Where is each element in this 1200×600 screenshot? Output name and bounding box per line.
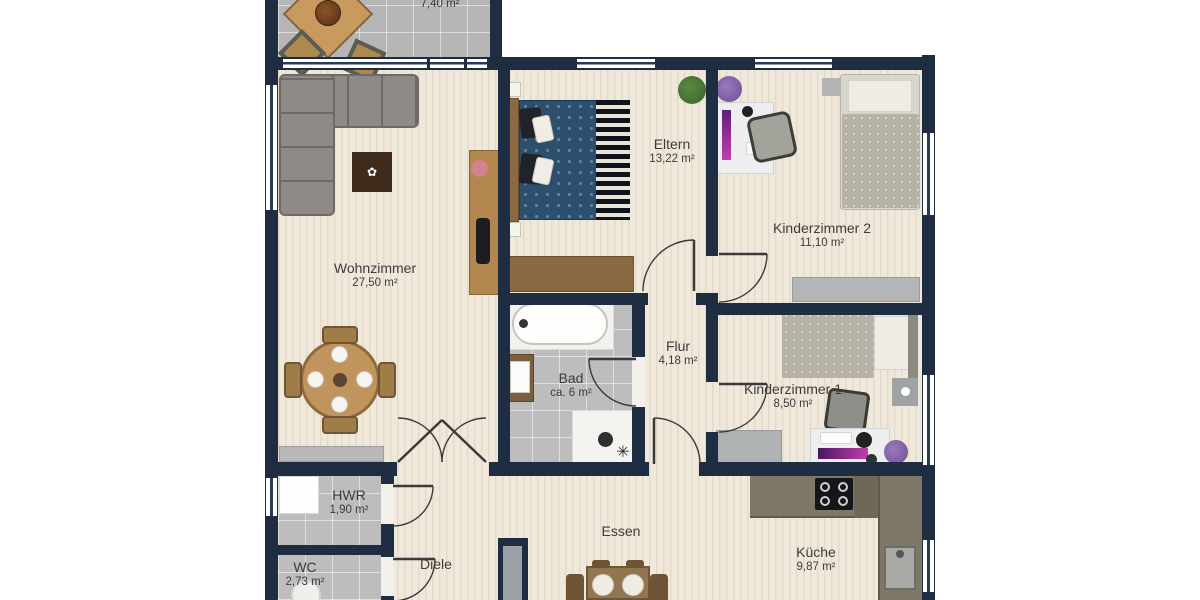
tv xyxy=(476,218,490,264)
dining-chair-north xyxy=(322,326,358,344)
room-name: Wohnzimmer xyxy=(334,260,416,277)
room-area: 1,90 m² xyxy=(330,504,369,518)
essen-chair-top xyxy=(592,560,610,568)
wall-bath-right-upper xyxy=(632,305,645,357)
dining-chair-east xyxy=(378,362,396,398)
window-hwr-left xyxy=(266,478,277,516)
room-area: 9,87 m² xyxy=(796,561,836,575)
room-name: Eltern xyxy=(649,136,694,153)
room-area: 13,22 m² xyxy=(649,153,694,167)
bathtub-faucet xyxy=(519,319,528,328)
k2-monitor xyxy=(722,110,731,160)
dining-chair-west xyxy=(284,362,302,398)
window-parents xyxy=(577,59,655,68)
room-label-bad: Bad ca. 6 m² xyxy=(550,370,592,400)
plate xyxy=(622,574,644,596)
k1-notepad xyxy=(820,432,852,444)
k1-nightstand-knob xyxy=(901,387,910,396)
wall-main-left xyxy=(265,462,397,476)
room-label-balkon: 7,40 m² xyxy=(421,0,460,12)
burner xyxy=(838,482,848,492)
room-area: 7,40 m² xyxy=(421,0,460,12)
room-area: 11,10 m² xyxy=(773,237,871,251)
window-mullion xyxy=(464,59,467,68)
room-name: Essen xyxy=(602,523,641,540)
plant-purple xyxy=(884,440,908,464)
window-mullion xyxy=(427,59,430,68)
room-name: HWR xyxy=(330,487,369,504)
plant-purple xyxy=(716,76,742,102)
room-area: 8,50 m² xyxy=(744,398,842,412)
k1-desk-item xyxy=(856,432,872,448)
room-name: Bad xyxy=(550,370,592,387)
plant-green xyxy=(678,76,706,104)
essen-chair-left xyxy=(566,574,584,600)
washing-machine xyxy=(279,476,319,514)
room-area: 2,73 m² xyxy=(286,576,325,590)
plate xyxy=(592,574,614,596)
room-label-eltern: Eltern 13,22 m² xyxy=(649,136,694,166)
window-balcony-door xyxy=(283,59,487,68)
window-k1-right xyxy=(923,375,934,465)
k1-duvet xyxy=(782,312,874,378)
plate xyxy=(331,346,348,363)
wall-divider-upper xyxy=(706,68,718,256)
window-kitchen-right xyxy=(923,540,934,592)
lowboard-gray xyxy=(279,446,384,462)
k1-keyboard-purple xyxy=(818,448,868,459)
wall-divider-low xyxy=(706,432,718,466)
room-name: Flur xyxy=(659,338,698,355)
wall-hwr-wc-divider xyxy=(265,545,381,555)
wall-kids-divider xyxy=(706,303,935,315)
plate xyxy=(307,371,324,388)
room-name: WC xyxy=(286,559,325,576)
window-livingroom-left xyxy=(266,85,277,210)
balcony-table-plate xyxy=(315,0,341,26)
burner xyxy=(838,496,848,506)
sliding-door-panel xyxy=(503,546,522,600)
window-k2-right xyxy=(923,133,934,215)
room-name: Diele xyxy=(420,556,452,573)
room-label-kinderzimmer1: Kinderzimmer 1 8,50 m² xyxy=(744,381,842,411)
door-threshold-bad xyxy=(632,357,645,407)
k1-bed-headboard xyxy=(908,312,918,378)
room-name: Küche xyxy=(796,544,836,561)
burner xyxy=(820,496,830,506)
sofa-left xyxy=(279,74,335,216)
bath-plant: ✳ xyxy=(614,444,632,462)
wall-hwr-right-mid xyxy=(381,524,394,557)
parents-bed-blanket-striped xyxy=(596,100,630,220)
essen-chair-right xyxy=(650,574,668,600)
room-label-flur: Flur 4,18 m² xyxy=(659,338,698,368)
room-label-essen: Essen xyxy=(602,523,641,540)
room-label-wohnzimmer: Wohnzimmer 27,50 m² xyxy=(334,260,416,290)
room-name: Kinderzimmer 2 xyxy=(773,220,871,237)
wall-main-mid xyxy=(489,462,649,476)
coffee-table: ✿ xyxy=(352,152,392,192)
k2-duvet xyxy=(842,114,919,208)
dining-chair-south xyxy=(322,416,358,434)
wall-livingroom-right xyxy=(498,68,510,468)
k2-wardrobe xyxy=(792,277,920,302)
door-threshold-hwr xyxy=(381,484,394,524)
wall-wc-right-bottom xyxy=(381,596,394,600)
table-bowl xyxy=(333,373,347,387)
sink-basin xyxy=(510,361,530,393)
plate xyxy=(356,371,373,388)
k1-wardrobe xyxy=(716,430,782,466)
window-k2-top xyxy=(755,59,832,68)
room-name: Kinderzimmer 1 xyxy=(744,381,842,398)
k2-chair xyxy=(746,110,799,164)
parents-wardrobe xyxy=(506,256,634,292)
wall-parents-bottom xyxy=(498,293,648,305)
room-area: 27,50 m² xyxy=(334,277,416,291)
shower-drain xyxy=(598,432,613,447)
essen-chair-top xyxy=(626,560,644,568)
k2-pillow xyxy=(848,80,912,112)
floor-plan: ✿ ✳ xyxy=(0,0,1200,600)
room-label-hwr: HWR 1,90 m² xyxy=(330,487,369,517)
k2-desk-item xyxy=(742,106,753,117)
plate xyxy=(331,396,348,413)
room-label-kueche: Küche 9,87 m² xyxy=(796,544,836,574)
door-threshold-wc xyxy=(381,557,394,596)
burner xyxy=(820,482,830,492)
wall-hwr-right-top xyxy=(381,474,394,484)
room-area: ca. 6 m² xyxy=(550,387,592,401)
wall-main-right xyxy=(699,462,935,476)
wall-bath-right-lower xyxy=(632,407,645,464)
room-area: 4,18 m² xyxy=(659,355,698,369)
sideboard-flower xyxy=(471,160,488,177)
room-label-diele: Diele xyxy=(420,556,452,573)
room-label-wc: WC 2,73 m² xyxy=(286,559,325,589)
sink-faucet xyxy=(896,550,904,558)
room-label-kinderzimmer2: Kinderzimmer 2 11,10 m² xyxy=(773,220,871,250)
